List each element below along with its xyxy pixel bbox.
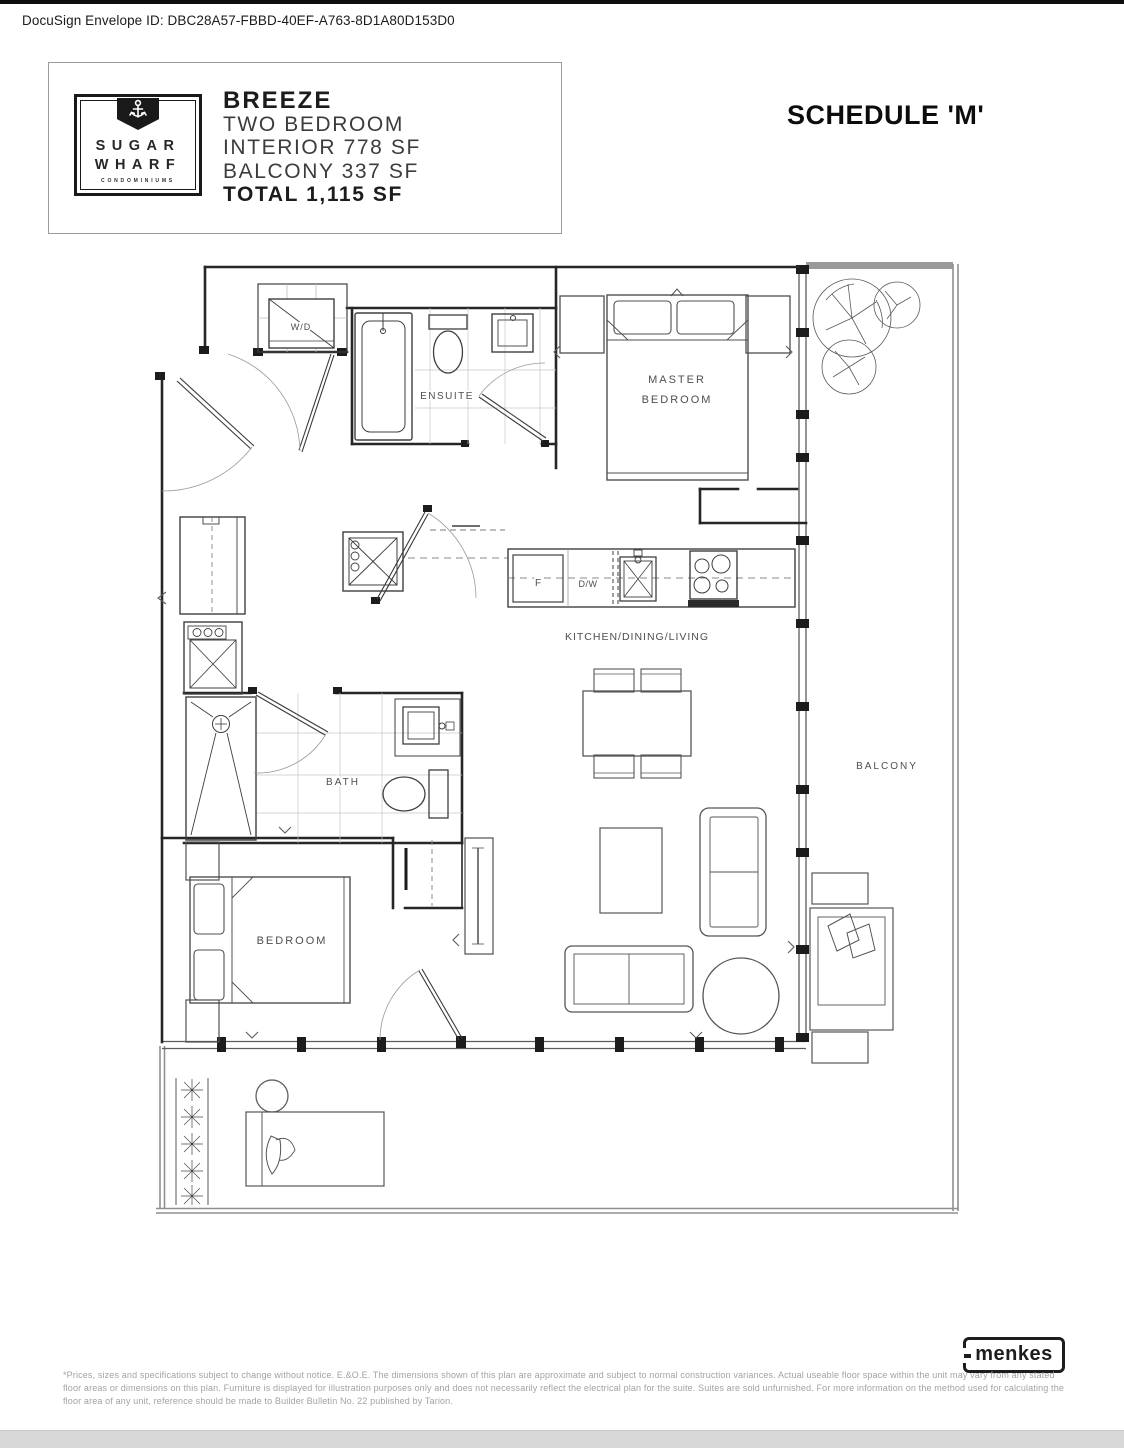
plan-name: BREEZE <box>223 89 421 113</box>
kitchen: F D/W KITCHEN/DINING/LIVING <box>343 526 795 643</box>
dining-table-icon <box>583 669 691 778</box>
nightstand <box>746 296 790 353</box>
utility-cabinet <box>184 622 242 694</box>
window-mullions <box>217 265 809 1052</box>
ensuite-door-icon <box>479 363 546 441</box>
laundry-closet: W/D <box>258 284 347 352</box>
master-bedroom-label-1: MASTER <box>648 374 706 386</box>
ensuite-room: ENSUITE <box>355 308 556 444</box>
plan-total-area: TOTAL 1,115 SF <box>223 183 421 207</box>
floor-plan-drawing: W/D <box>150 255 965 1230</box>
plan-header-box: SUGAR WHARF CONDOMINIUMS BREEZE TWO BEDR… <box>48 62 562 234</box>
outdoor-table-icon <box>256 1080 288 1112</box>
bathtub-icon <box>355 313 412 440</box>
floor-plan: W/D <box>150 255 965 1230</box>
foyer-console <box>465 838 493 954</box>
ensuite-label: ENSUITE <box>420 391 474 402</box>
master-bedroom: MASTER BEDROOM <box>560 289 790 480</box>
lounge-chair-icon <box>246 1112 384 1186</box>
coffee-table-icon <box>600 828 662 913</box>
logo-subtitle: CONDOMINIUMS <box>77 178 199 184</box>
tree-icon <box>813 279 920 394</box>
logo-name: SUGAR WHARF <box>77 137 199 175</box>
document-page: DocuSign Envelope ID: DBC28A57-FBBD-40EF… <box>0 0 1124 1448</box>
disclaimer-text: *Prices, sizes and specifications subjec… <box>63 1369 1066 1408</box>
loveseat-icon <box>565 946 693 1012</box>
logo-name-line1: SUGAR <box>77 137 199 156</box>
fridge-label: F <box>535 578 541 589</box>
entry-door-icon <box>162 354 334 491</box>
kitchen-sink-icon <box>620 550 656 601</box>
balcony-door-icon <box>380 969 462 1040</box>
nightstand <box>560 296 604 353</box>
bath-door-icon <box>254 692 328 773</box>
bath-tiles <box>256 693 462 843</box>
bath-label: BATH <box>326 777 360 788</box>
plan-info: BREEZE TWO BEDROOM INTERIOR 778 SF BALCO… <box>223 89 421 207</box>
window-walls <box>162 267 806 1049</box>
planter-icon <box>176 1078 208 1205</box>
bath-toilet-icon <box>383 770 448 818</box>
docusign-envelope-id: DocuSign Envelope ID: DBC28A57-FBBD-40EF… <box>22 13 455 28</box>
bath-room: BATH <box>186 692 462 843</box>
stove-icon <box>688 551 739 607</box>
toilet-icon <box>429 315 467 373</box>
nightstand <box>186 1000 219 1042</box>
kitchen-island <box>343 532 403 591</box>
balcony-label: BALCONY <box>856 761 918 772</box>
sink-icon <box>492 314 533 352</box>
vanity-sink-icon <box>395 699 460 756</box>
plan-balcony-area: BALCONY 337 SF <box>223 160 421 184</box>
nightstand <box>186 842 219 880</box>
master-bedroom-label-2: BEDROOM <box>642 394 713 406</box>
plan-interior-area: INTERIOR 778 SF <box>223 136 421 160</box>
sofa-icon <box>700 808 766 936</box>
outdoor-lounge-set <box>810 873 893 1063</box>
schedule-title: SCHEDULE 'M' <box>787 100 984 131</box>
bottom-scan-band <box>0 1430 1124 1448</box>
entry-closet <box>180 517 245 614</box>
plan-type: TWO BEDROOM <box>223 113 421 137</box>
round-ottoman-icon <box>703 958 779 1034</box>
shower-icon <box>186 697 256 840</box>
anchor-icon <box>128 98 148 122</box>
menkes-logo: menkes <box>963 1337 1065 1373</box>
unit-walls <box>162 267 806 1042</box>
bedroom-label: BEDROOM <box>257 935 328 947</box>
kitchen-label: KITCHEN/DINING/LIVING <box>565 631 709 643</box>
wd-label: W/D <box>291 322 312 332</box>
sugar-wharf-logo: SUGAR WHARF CONDOMINIUMS <box>74 94 202 196</box>
dishwasher-label: D/W <box>579 579 598 589</box>
logo-name-line2: WHARF <box>77 156 199 175</box>
living-dining <box>565 669 779 1034</box>
top-scan-bar <box>0 0 1124 4</box>
